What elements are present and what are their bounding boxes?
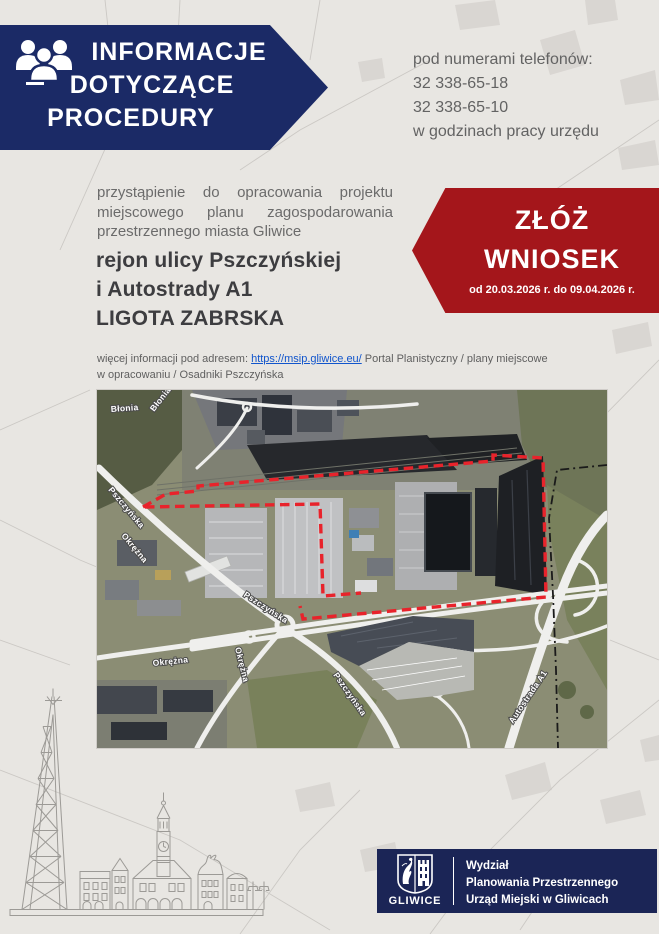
intro-line-3: przestrzennego miasta Gliwice (97, 222, 393, 242)
heading-line-1: rejon ulicy Pszczyńskiej (96, 246, 426, 275)
gliwice-skyline-drawing (8, 685, 270, 920)
phone-number-1: 32 338-65-18 (413, 72, 643, 96)
more-info-suffix: Portal Planistyczny / plany miejscowe (365, 353, 548, 365)
gliwice-logo-text: GLIWICE (379, 895, 451, 907)
contact-intro: pod numerami telefonów: (413, 48, 643, 72)
msip-link[interactable]: https://msip.gliwice.eu/ (251, 353, 362, 365)
title-banner: INFORMACJE DOTYCZĄCE PROCEDURY (0, 25, 328, 150)
cta-word-2: WNIOSEK (445, 244, 659, 275)
contact-hours: w godzinach pracy urzędu (413, 120, 643, 144)
heading-line-3: LIGOTA ZABRSKA (96, 304, 426, 333)
cta-banner: ZŁÓŻ WNIOSEK od 20.03.2026 r. do 09.04.2… (412, 188, 659, 313)
intro-paragraph: przystąpienie do opracowania projektu mi… (97, 183, 393, 242)
title-line-3: PROCEDURY (1, 105, 261, 131)
poster: INFORMACJE DOTYCZĄCE PROCEDURY pod numer… (0, 0, 659, 934)
cta-word-1: ZŁÓŻ (445, 205, 659, 236)
plan-area-heading: rejon ulicy Pszczyńskiej i Autostrady A1… (96, 246, 426, 333)
footer-divider (453, 857, 454, 905)
department-line-1: Wydział (466, 858, 618, 875)
cta-dates: od 20.03.2026 r. do 09.04.2026 r. (445, 284, 659, 296)
footer-bar: GLIWICE Wydział Planowania Przestrzenneg… (377, 849, 657, 913)
more-info-line-2: w opracowaniu / Osadniki Pszczyńska (97, 367, 642, 383)
street-label-blonia-1: Błonia (110, 402, 138, 414)
heading-line-2: i Autostrady A1 (96, 275, 426, 304)
phone-number-2: 32 338-65-10 (413, 96, 643, 120)
intro-line-2: miejscowego planu zagospodarowania (97, 203, 393, 223)
contact-info: pod numerami telefonów: 32 338-65-18 32 … (413, 48, 643, 144)
title-line-1: INFORMACJE (49, 39, 309, 65)
intro-line-1: przystąpienie do opracowania projektu (97, 183, 393, 203)
title-line-2: DOTYCZĄCE (22, 72, 282, 98)
more-info-prefix: więcej informacji pod adresem: (97, 353, 251, 365)
more-info: więcej informacji pod adresem: https://m… (97, 351, 642, 383)
department-line-2: Planowania Przestrzennego (466, 875, 618, 892)
department-name: Wydział Planowania Przestrzennego Urząd … (466, 858, 618, 909)
department-line-3: Urząd Miejski w Gliwicach (466, 892, 618, 909)
gliwice-coat-of-arms (397, 854, 433, 894)
